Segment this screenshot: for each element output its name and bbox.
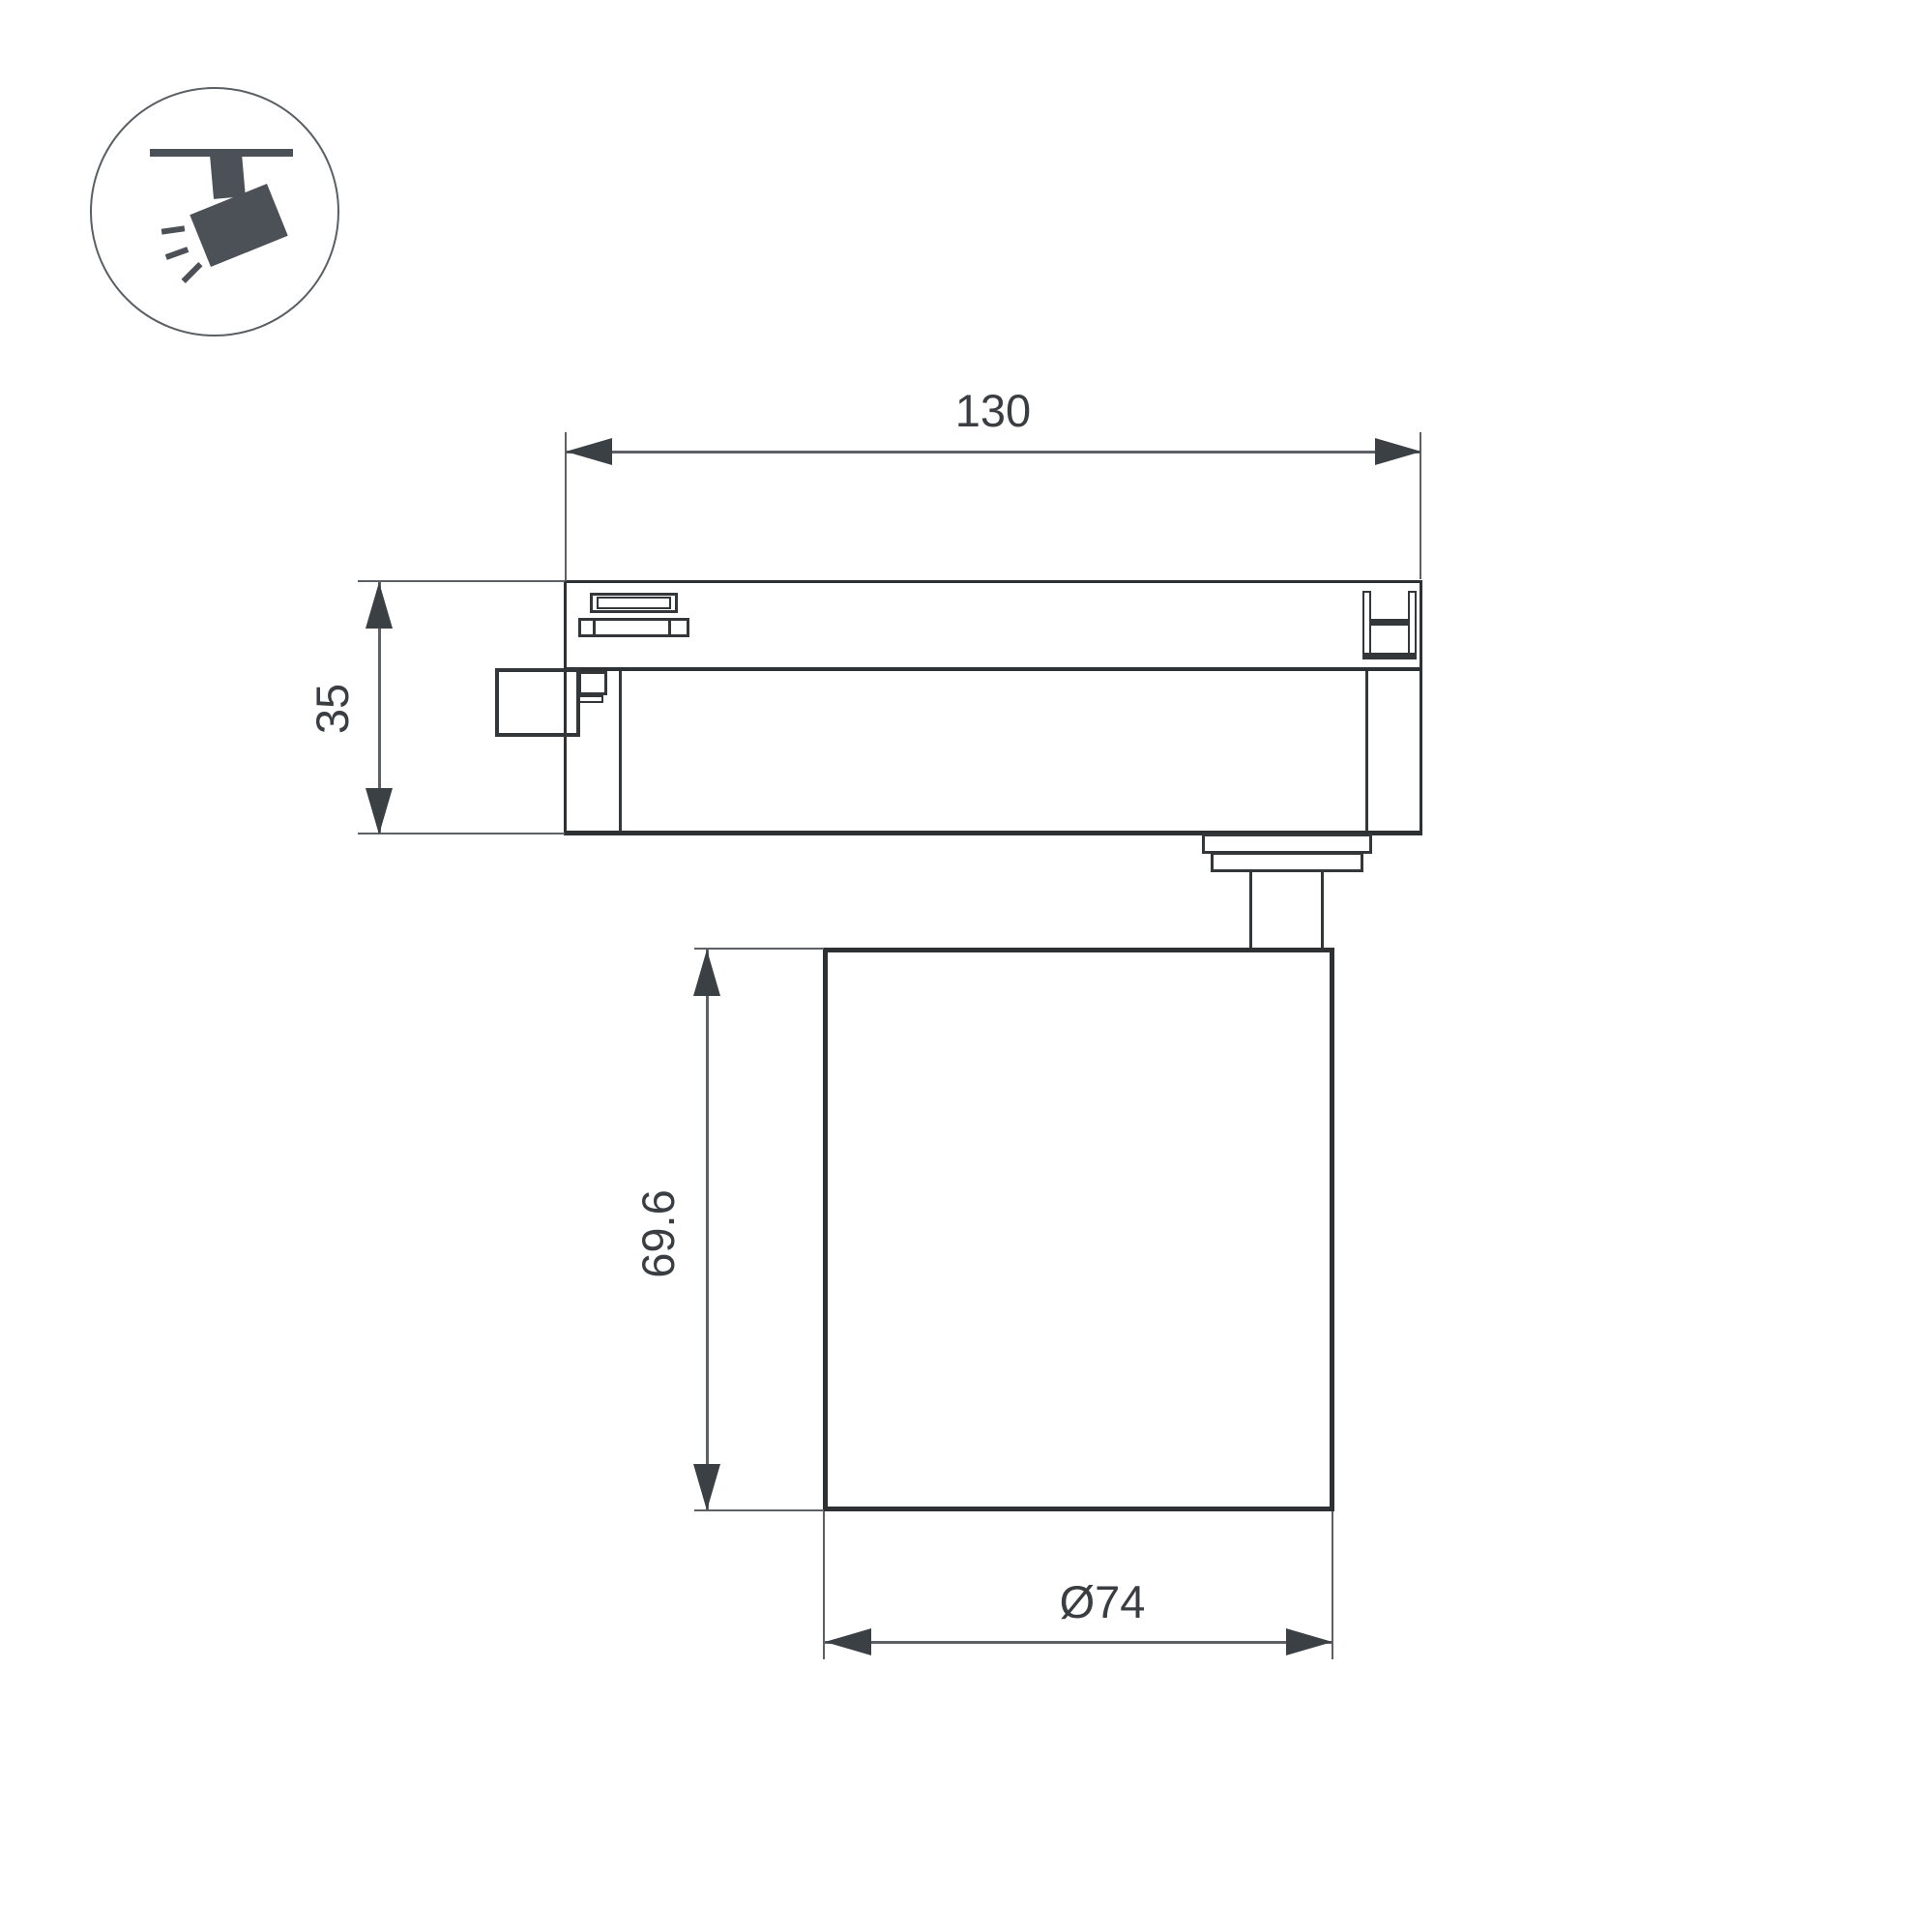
adapter-divider-line [564,667,1422,671]
dim-69-6-arrow-down [693,1464,720,1510]
contact-bracket-crossbar [1369,619,1410,626]
contact-clip-upper-slot [597,597,671,609]
dim-130-arrow-left [566,438,612,465]
track-adapter-outline [564,580,1422,835]
stem-flange-upper [1202,834,1372,854]
dim-130-label: 130 [896,387,1090,435]
dim-74-arrow-left [825,1628,871,1655]
dim-74-arrow-right [1286,1628,1332,1655]
contact-clip-lower-divider [668,619,671,636]
drawing-canvas: 130 35 69.6 Ø74 [0,0,1932,1932]
lamp-body-outline [823,948,1334,1511]
dim-130-line [566,451,1421,454]
mount-stem-icon [210,152,246,199]
dim-35-arrow-down [366,788,393,834]
adapter-inner-line-left [619,671,622,832]
dim-69-6-arrow-up [693,950,720,996]
stem-neck-left-edge [1249,870,1252,950]
latch-clip [578,671,607,695]
dim-74-line [825,1641,1332,1644]
dim-130-arrow-right [1375,438,1421,465]
dim-74-label: Ø74 [1006,1578,1199,1626]
latch-clip-step [578,695,603,703]
stem-neck-right-edge [1321,870,1324,950]
dim-35-arrow-up [366,582,393,629]
dim-35-label: 35 [308,612,357,805]
dim-69-6-line [706,950,709,1510]
locking-latch [495,668,580,737]
adapter-inner-line-right [1365,671,1368,832]
dim-69-6-label: 69.6 [634,1137,683,1331]
contact-bracket-bottom [1362,653,1417,659]
stem-flange-lower [1211,852,1363,872]
contact-clip-lower-divider [593,619,596,636]
